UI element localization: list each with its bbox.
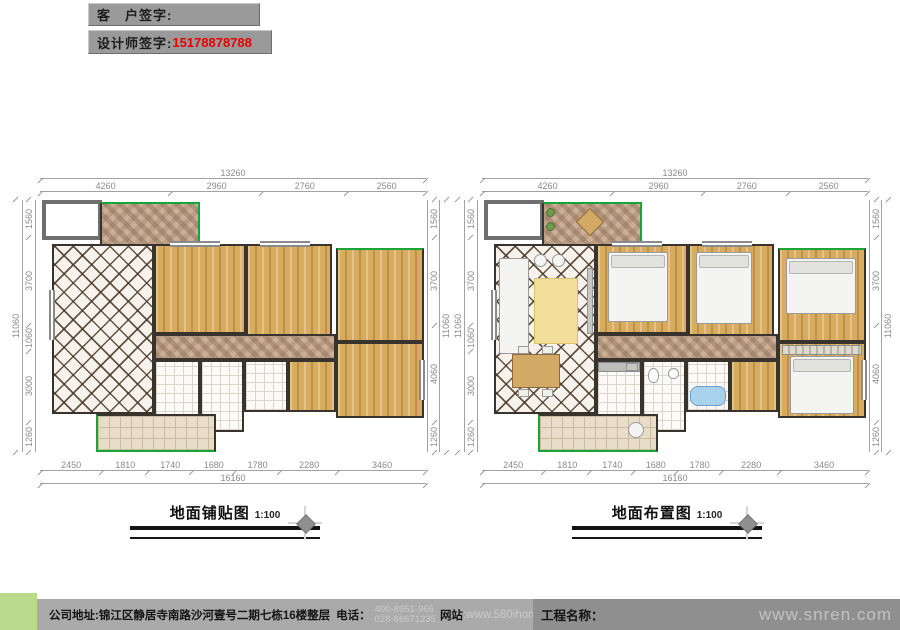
room-hallway	[154, 334, 336, 360]
phone-number-1: 400-8951-966	[375, 605, 436, 615]
master-bed	[790, 356, 854, 414]
footer-info-bar: 公司地址:锦江区静居寺南路沙河壹号二期七栋16楼整层 电话： 400-8951-…	[37, 599, 533, 630]
room-bedroom-1	[154, 244, 246, 334]
plant	[546, 222, 555, 231]
dim-left-total: 11060	[452, 200, 465, 452]
window	[419, 360, 425, 400]
sofa	[499, 258, 529, 354]
dim-left-segments: 15603700106030001260	[465, 200, 478, 452]
designer-signature-label: 设计师签字:	[97, 33, 172, 52]
floorplan-sheet: 客 户签字: 设计师签字:15178878788 13260 426029602…	[0, 0, 900, 630]
room-balcony-bottom	[96, 414, 216, 452]
designer-signature-block: 设计师签字:15178878788	[88, 30, 272, 54]
phone-number-2: 028-86671235	[375, 615, 436, 625]
window	[491, 290, 497, 340]
phone-label: 电话：	[336, 607, 371, 623]
dining-chair	[518, 389, 529, 397]
room-entry-porch	[42, 200, 102, 240]
area-rug	[534, 278, 578, 344]
customer-signature-label: 客 户签字:	[97, 5, 172, 24]
room-entry-porch	[484, 200, 544, 240]
plan-canvas	[482, 200, 868, 452]
bed	[696, 252, 752, 324]
watermark-url: www.snren.com	[759, 605, 892, 625]
customer-signature-block: 客 户签字:	[88, 3, 260, 26]
wardrobe	[782, 345, 862, 355]
room-master-bedroom	[336, 342, 424, 418]
window	[861, 360, 867, 400]
pouf	[534, 254, 547, 267]
room-bathroom-2	[244, 360, 288, 412]
bed	[608, 252, 668, 322]
dim-left-segments: 15603700106030001260	[23, 200, 36, 452]
plan-title: 地面铺贴图	[170, 502, 250, 523]
window	[49, 290, 55, 340]
plan-canvas	[40, 200, 426, 452]
designer-phone: 15178878788	[172, 35, 252, 50]
dim-right-total: 11060	[881, 200, 894, 452]
plan-title: 地面布置图	[612, 502, 692, 523]
dining-chair	[542, 346, 553, 354]
dim-bottom-segments: 2450181017401680178022803460	[40, 458, 426, 471]
footer-green-block	[0, 593, 37, 630]
dim-left-total: 11060	[10, 200, 23, 452]
dining-table	[512, 354, 560, 388]
north-compass-icon	[730, 506, 764, 540]
room-bedroom-3	[336, 248, 424, 342]
room-hallway	[596, 334, 778, 360]
company-address-label: 公司地址:	[49, 607, 99, 623]
stove	[626, 363, 638, 371]
washing-machine	[628, 422, 644, 438]
toilet	[648, 368, 659, 383]
floor-layout-plan: 13260 4260296027602560 11060 15603700106…	[450, 158, 900, 560]
dim-top-segments: 4260296027602560	[40, 179, 426, 192]
room-bedroom-4	[730, 360, 778, 412]
dim-top-total: 13260	[482, 166, 868, 179]
website-label: 网站	[440, 607, 463, 623]
plan-scale: 1:100	[697, 510, 723, 521]
plant	[546, 208, 555, 217]
dim-top-segments: 4260296027602560	[482, 179, 868, 192]
floor-tiling-plan: 13260 4260296027602560 11060 15603700106…	[8, 158, 458, 560]
dim-bottom-total: 16160	[482, 471, 868, 484]
plan-scale: 1:100	[255, 510, 281, 521]
project-name-label: 工程名称：	[541, 605, 604, 624]
window	[702, 241, 752, 247]
company-address: 锦江区静居寺南路沙河壹号二期七栋16楼整层	[99, 607, 330, 623]
sink	[668, 368, 679, 379]
dining-chair	[518, 346, 529, 354]
window	[612, 241, 662, 247]
north-compass-icon	[288, 506, 322, 540]
window	[260, 241, 310, 247]
room-bedroom-2	[246, 244, 332, 336]
dim-top-total: 13260	[40, 166, 426, 179]
room-bedroom-4	[288, 360, 336, 412]
bed	[786, 258, 856, 314]
bathtub	[690, 386, 726, 406]
dim-bottom-total: 16160	[40, 471, 426, 484]
dim-bottom-segments: 2450181017401680178022803460	[482, 458, 868, 471]
dining-chair	[542, 389, 553, 397]
room-living	[52, 244, 154, 414]
pouf	[552, 254, 565, 267]
footer-project-bar: 工程名称： www.snren.com	[533, 599, 900, 630]
tv-cabinet	[587, 268, 593, 334]
window	[170, 241, 220, 247]
